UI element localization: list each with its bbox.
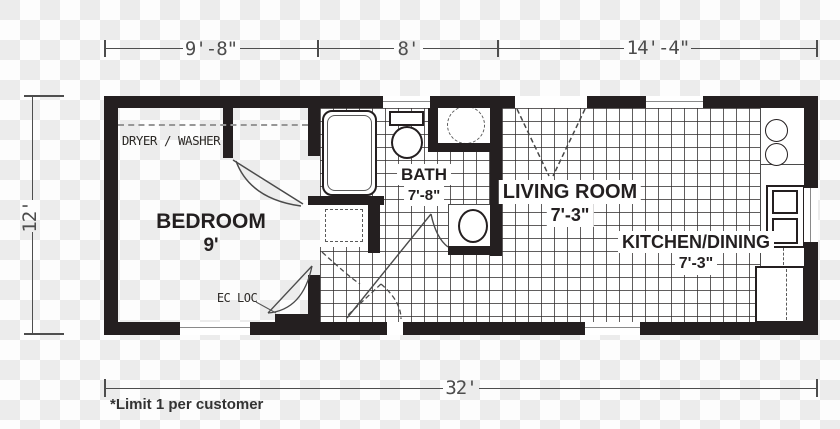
bath-size: 7'-8" [404,185,444,206]
vanity-sink [458,209,488,243]
bedroom-size: 9' [156,234,266,258]
wall-bath-closet-right [368,205,380,253]
window-top-bath [383,96,430,108]
dim-line-top [240,48,317,49]
dim-text-12: 12' [19,201,41,232]
dim-text-14-4: 14'-4" [627,37,690,59]
bedroom-door-swing [236,161,301,206]
window-top-living [646,96,703,108]
dim-text-32: 32' [445,377,476,399]
dim-line-top [499,48,624,49]
water-heater [447,106,485,144]
wall-bedroom-closet [223,96,233,158]
wall-ecloc-threshold [275,314,320,323]
living-room-size: 7'-3" [547,204,594,227]
ecloc-door-swing [268,266,312,313]
window-bottom-living-glass [585,327,640,328]
wall-top [104,96,818,108]
window-top-living-glass [646,101,703,102]
kitchen-dining-label: KITCHEN/DINING 7'-3" [618,231,774,275]
window-right-kitchen-glass [810,188,811,242]
refrigerator-door-line [786,269,787,320]
wall-vanity-bottom [448,246,502,255]
wall-left [104,96,118,335]
window-top-bath-glass [383,101,430,102]
ecloc-leader-line [256,302,276,313]
dim-line-bottom [479,388,816,389]
dim-line-top [319,48,394,49]
footnote-text: *Limit 1 per customer [110,396,263,413]
dim-tick [816,40,818,57]
closet-shelf-line [118,124,308,126]
wall-bath-closet-top [308,196,384,205]
bathtub-inner [327,115,372,191]
stove-burner-1 [772,190,798,214]
living-room-label: LIVING ROOM 7'-3" [499,180,641,227]
bath-label: BATH 7'-8" [397,164,451,206]
bath-closet-door [325,209,363,242]
toilet-tank [389,111,424,126]
living-room-name: LIVING ROOM [499,180,641,204]
entry-door-opening [515,96,587,108]
stove-burner-2 [772,218,798,244]
dryer-washer-label: DRYER / WASHER [118,133,224,148]
hall-door-opening [387,322,403,335]
dim-text-8: 8' [398,38,419,60]
bedroom-name: BEDROOM [156,210,266,234]
dim-tick [24,333,64,335]
window-bottom-living [585,322,640,335]
wall-bedroom-bath-upper [308,96,320,156]
dim-line-bottom [106,388,443,389]
wall-wh-closet-bottom [428,143,502,152]
ecloc-door-leaf [268,266,312,313]
bedroom-label: BEDROOM 9' [156,210,266,258]
kitchen-sink-bowl-2 [765,143,788,166]
dim-line-left [32,97,33,200]
floor-plan-image: DRYER / WASHER BEDROOM 9' BATH 7'-8" LIV… [0,0,840,429]
kitchen-sink-bowl-1 [765,119,788,142]
toilet [391,126,423,159]
kitchen-dining-name: KITCHEN/DINING [618,231,774,253]
ec-loc-label: EC LOC [217,291,257,305]
dim-line-left [32,232,33,333]
dim-line-top [106,48,183,49]
dim-tick [24,95,64,97]
dim-text-9-8: 9'-8" [185,38,237,60]
bedroom-door-leaf [233,160,303,204]
wall-bath-living [490,96,502,256]
dim-line-top [691,48,816,49]
window-bottom-bedroom-glass [180,327,250,328]
kitchen-dining-size: 7'-3" [675,253,718,275]
window-bottom-bedroom [180,322,250,335]
dim-line-top [423,48,497,49]
window-right-kitchen [804,188,818,242]
bath-name: BATH [397,164,451,185]
dim-tick [816,379,818,397]
